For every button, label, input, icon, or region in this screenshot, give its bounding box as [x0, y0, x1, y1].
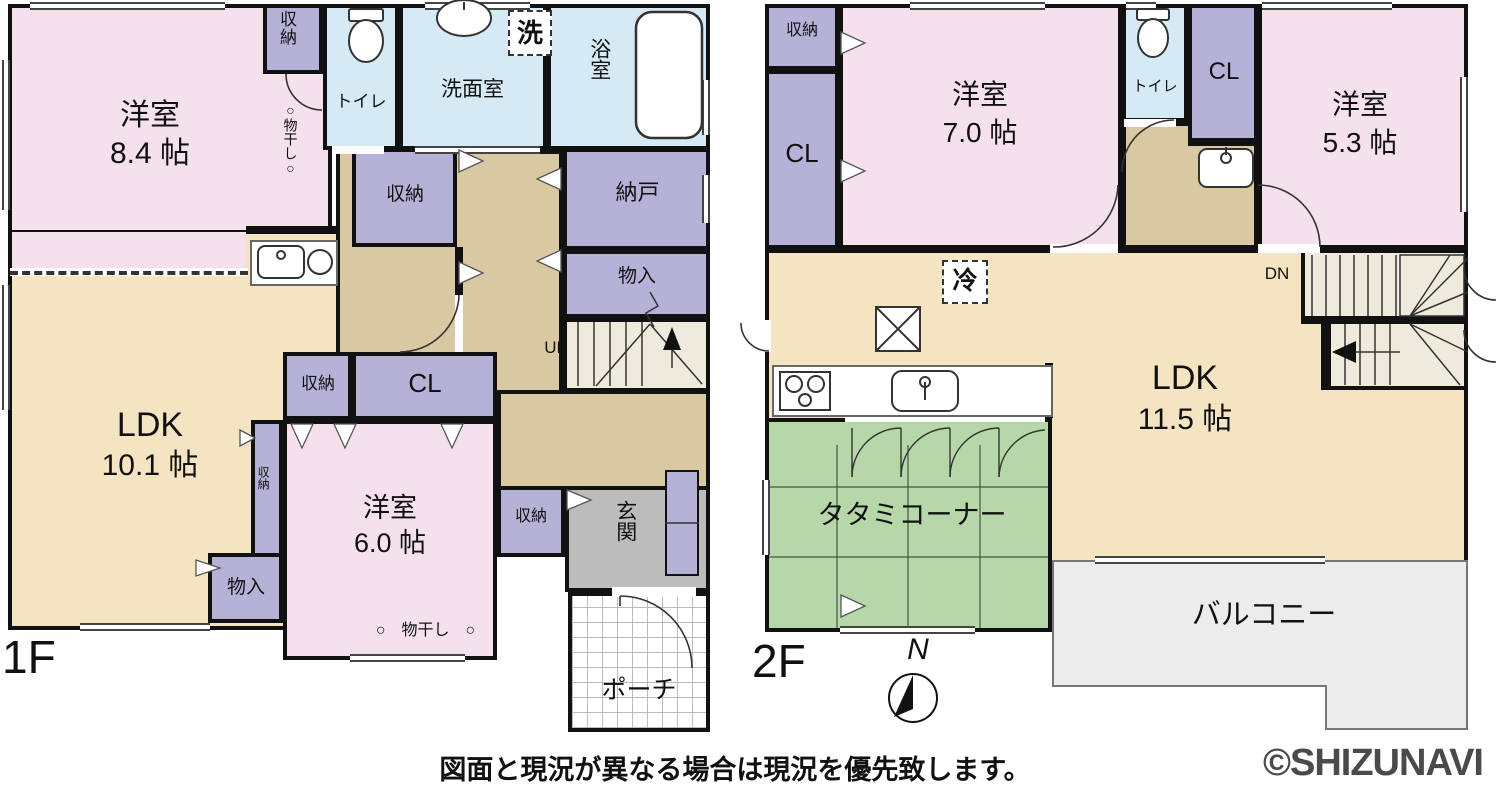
- f2-room70-name: 洋室: [900, 78, 1060, 111]
- f1-window-right-bath: [702, 80, 710, 135]
- f1-window-left-room84: [2, 60, 10, 210]
- f1-toilet-room: [323, 4, 399, 150]
- f1-shoe-cabinet: [665, 470, 699, 576]
- f1-monoire-left-label: 物入: [216, 577, 276, 599]
- f2-window-top-toilet: [1126, 2, 1156, 10]
- f1-dashed-partition: [10, 271, 248, 275]
- f2-window-right-room53: [1460, 77, 1468, 212]
- f2-room53-name: 洋室: [1280, 88, 1440, 121]
- f2-room70-size: 7.0 帖: [900, 116, 1060, 149]
- f2-ldk-name: LDK: [1125, 358, 1245, 398]
- f1-floor-label: 1F: [2, 630, 72, 684]
- f2-door-gap-room70: [1050, 244, 1118, 253]
- f2-room53-size: 5.3 帖: [1280, 126, 1440, 159]
- f1-kitchen-counter: [250, 240, 338, 286]
- f1-door-gap-porch: [612, 587, 696, 597]
- f2-toilet-label: トイレ: [1122, 78, 1188, 96]
- f1-closet-mid-label: 収納: [370, 184, 440, 206]
- f1-porch-label: ポーチ: [586, 676, 692, 706]
- f2-hall-a: [1122, 122, 1192, 249]
- f2-stairs-lower: [1325, 320, 1468, 390]
- f2-ldk-size: 11.5 帖: [1090, 402, 1280, 437]
- compass-icon: [889, 674, 937, 722]
- f1-window-bottom-room60: [350, 654, 465, 662]
- compass-n-label: N: [898, 632, 938, 667]
- f1-kitchen-wall: [246, 226, 340, 234]
- f1-nando-label: 納戸: [595, 180, 680, 206]
- f2-hall-b: [1188, 142, 1258, 249]
- watermark-text: ©SHIZUNAVI: [1263, 742, 1483, 785]
- f2-door-gap-toilet: [1124, 119, 1176, 127]
- f2-door-gap-room53: [1258, 244, 1320, 253]
- f1-genkan-label: 玄関: [612, 500, 637, 542]
- f1-monoire-right-label: 物入: [593, 266, 681, 288]
- f2-column-box: [875, 306, 921, 352]
- f2-fridge-box: 冷: [942, 260, 988, 304]
- f1-bathroom: [547, 4, 710, 150]
- f1-room84-size: 8.4 帖: [70, 136, 230, 171]
- f1-room60-name: 洋室: [310, 493, 470, 525]
- f1-toilet-label: トイレ: [325, 92, 397, 112]
- f2-cl-right-label: CL: [1196, 58, 1252, 86]
- f2-window-top-room53: [1262, 2, 1392, 10]
- f1-window-bottom-ldk: [80, 623, 210, 631]
- f1-window-top-room84: [30, 2, 225, 10]
- f1-washer-box: 洗: [508, 10, 552, 56]
- f1-ldk-name: LDK: [90, 405, 210, 445]
- f2-window-left-tatami: [762, 480, 770, 555]
- f2-stairs-left-wall: [1321, 318, 1331, 390]
- f1-stairs: [563, 318, 710, 392]
- f2-door-gap-ldk-left: [763, 320, 771, 352]
- floorplan-canvas: 洗 冷: [0, 0, 1500, 788]
- f1-slidingdoor-washroom: [415, 146, 540, 154]
- f2-window-balcony: [1095, 556, 1325, 564]
- f1-ldk-size: 10.1 帖: [60, 448, 240, 483]
- f2-dn-label: DN: [1252, 264, 1302, 284]
- f2-toilet-room: [1122, 4, 1188, 122]
- f1-washroom-label: 洗面室: [410, 78, 535, 103]
- f2-balcony-label: バルコニー: [1158, 598, 1370, 632]
- f1-door-gap-hall: [455, 295, 463, 352]
- f2-kitchen-counter: [772, 365, 1053, 417]
- f1-window-right-nando: [702, 175, 710, 223]
- f1-room84-name: 洋室: [70, 98, 230, 133]
- f1-closet-top-label: 収納: [276, 10, 296, 46]
- f1-washer-label: 洗: [517, 18, 543, 49]
- f1-closet-block-label: 収納: [286, 374, 350, 394]
- f1-door-gap-toilet: [332, 146, 384, 154]
- f1-closet-right60-label: 収納: [501, 508, 561, 527]
- f2-stairs-upper: [1301, 249, 1468, 320]
- f2-floor-label: 2F: [752, 634, 832, 688]
- f2-balcony-ext: [1325, 685, 1468, 730]
- f1-up-label: UP: [536, 338, 576, 358]
- f2-fridge-label: 冷: [952, 267, 977, 297]
- f1-cl-label: CL: [384, 368, 466, 399]
- f1-bath-label: 浴室: [586, 38, 611, 80]
- f2-closet-top-left-label: 収納: [772, 22, 832, 41]
- f1-window-left-ldk: [2, 285, 10, 410]
- f1-closet-thin-label: 収納: [256, 466, 270, 490]
- disclaimer-text: 図面と現況が異なる場合は現況を優先致します。: [390, 748, 1080, 787]
- f1-hall-wall-stub: [455, 247, 463, 299]
- f1-porch: [568, 592, 710, 732]
- f1-window-top-washroom: [425, 2, 530, 10]
- f1-room60-size: 6.0 帖: [310, 528, 470, 560]
- f1-monohoshi-h-label: ○ 物干し ○: [348, 622, 503, 641]
- f2-window-top-room70: [910, 2, 1045, 10]
- f2-tatami-label: タタミコーナー: [798, 500, 1026, 532]
- f1-monohoshi-v-label: ○物干し○: [282, 102, 299, 176]
- f2-cl-left-label: CL: [774, 138, 830, 169]
